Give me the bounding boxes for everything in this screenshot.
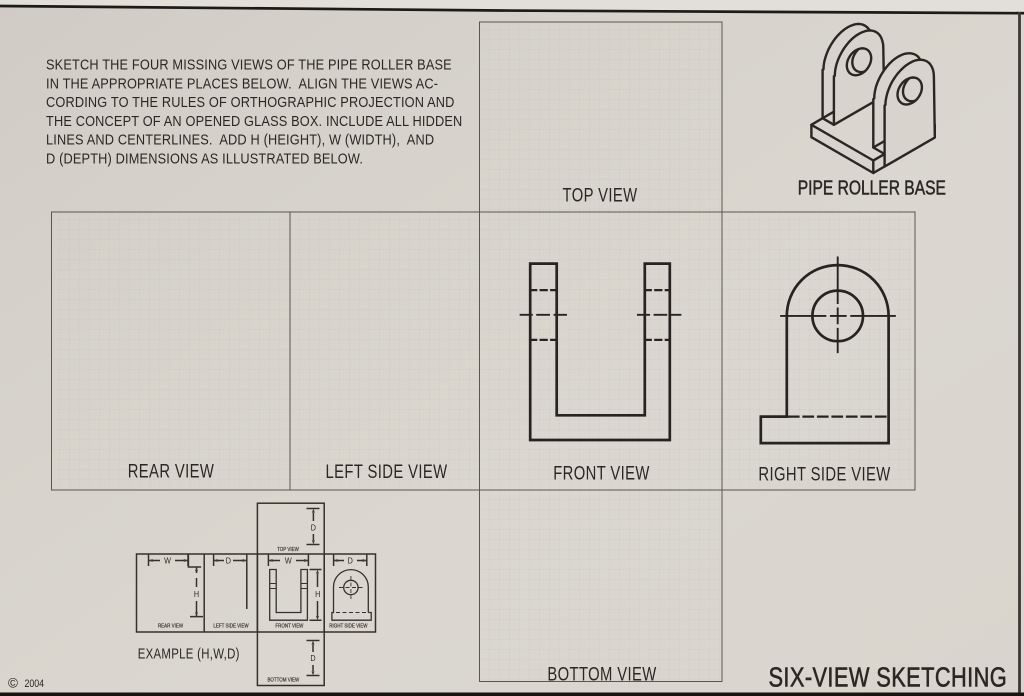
svg-text:TOP VIEW: TOP VIEW	[277, 547, 299, 554]
svg-text:REAR VIEW: REAR VIEW	[128, 461, 215, 482]
svg-text:D: D	[226, 556, 231, 566]
svg-text:BOTTOM VIEW: BOTTOM VIEW	[547, 664, 656, 685]
svg-text:LEFT SIDE VIEW: LEFT SIDE VIEW	[326, 461, 448, 482]
svg-text:D: D	[311, 523, 316, 533]
svg-text:REAR VIEW: REAR VIEW	[158, 623, 183, 630]
svg-text:THE CONCEPT OF AN OPENED GLASS: THE CONCEPT OF AN OPENED GLASS BOX. INCL…	[46, 112, 462, 129]
svg-text:LEFT SIDE VIEW: LEFT SIDE VIEW	[213, 623, 248, 630]
svg-text:BOTTOM VIEW: BOTTOM VIEW	[267, 677, 299, 684]
svg-text:FRONT VIEW: FRONT VIEW	[553, 463, 650, 484]
svg-text:IN THE APPROPRIATE PLACES BELO: IN THE APPROPRIATE PLACES BELOW. ALIGN T…	[46, 74, 438, 91]
svg-text:2004: 2004	[25, 678, 45, 690]
svg-text:SKETCH THE FOUR MISSING VIEWS: SKETCH THE FOUR MISSING VIEWS OF THE PIP…	[46, 55, 452, 72]
svg-text:W: W	[164, 556, 171, 566]
svg-text:SIX-VIEW SKETCHING: SIX-VIEW SKETCHING	[768, 662, 1007, 693]
svg-text:RIGHT SIDE VIEW: RIGHT SIDE VIEW	[758, 464, 890, 485]
svg-text:LINES AND CENTERLINES. ADD H: LINES AND CENTERLINES. ADD H (HEIGHT), W…	[46, 131, 434, 148]
svg-text:D: D	[348, 556, 353, 566]
svg-text:W: W	[285, 556, 292, 566]
svg-text:TOP VIEW: TOP VIEW	[563, 185, 638, 206]
svg-text:H: H	[194, 589, 199, 599]
svg-text:RIGHT SIDE VIEW: RIGHT SIDE VIEW	[329, 623, 367, 630]
svg-text:FRONT VIEW: FRONT VIEW	[275, 623, 303, 630]
svg-text:©: ©	[8, 676, 18, 691]
svg-text:PIPE ROLLER BASE: PIPE ROLLER BASE	[798, 177, 946, 199]
svg-text:CORDING TO THE RULES OF ORTHOG: CORDING TO THE RULES OF ORTHOGRAPHIC PRO…	[46, 93, 455, 110]
svg-text:EXAMPLE (H,W,D): EXAMPLE (H,W,D)	[138, 645, 240, 662]
svg-text:D (DEPTH) DIMENSIONS AS ILLUST: D (DEPTH) DIMENSIONS AS ILLUSTRATED BELO…	[46, 149, 363, 166]
svg-text:D: D	[310, 653, 315, 663]
svg-text:H: H	[315, 589, 320, 599]
